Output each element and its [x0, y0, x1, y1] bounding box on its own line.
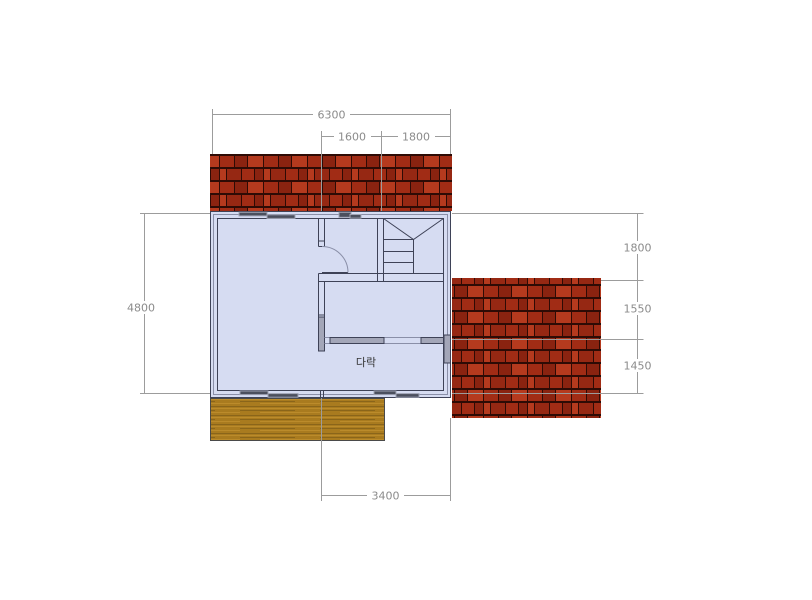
dim-label-stair-bay-left: 1600 [338, 131, 366, 144]
deck [210, 398, 385, 441]
floor-plan-canvas: 6300 1600 1800 4800 1800 1550 1450 3400 [0, 0, 812, 600]
plan: 다락 [211, 212, 451, 398]
dimension-overall-depth: 4800 [123, 214, 210, 394]
roof-right [452, 278, 601, 418]
window-right-wall [444, 335, 451, 363]
room-label: 다락 [356, 356, 376, 369]
dim-label-overall-width: 6300 [318, 109, 346, 122]
roof-top [210, 154, 452, 211]
floor-plan-page: 6300 1600 1800 4800 1800 1550 1450 3400 [0, 0, 812, 600]
dim-label-bottom-width: 3400 [372, 490, 400, 503]
dim-label-right-middle: 1550 [624, 303, 652, 316]
dim-label-overall-depth: 4800 [127, 302, 155, 315]
dim-label-right-bottom: 1450 [624, 360, 652, 373]
dim-label-stair-bay-right: 1800 [402, 131, 430, 144]
knee-wall-railing [325, 338, 444, 344]
dim-label-right-top: 1800 [624, 242, 652, 255]
